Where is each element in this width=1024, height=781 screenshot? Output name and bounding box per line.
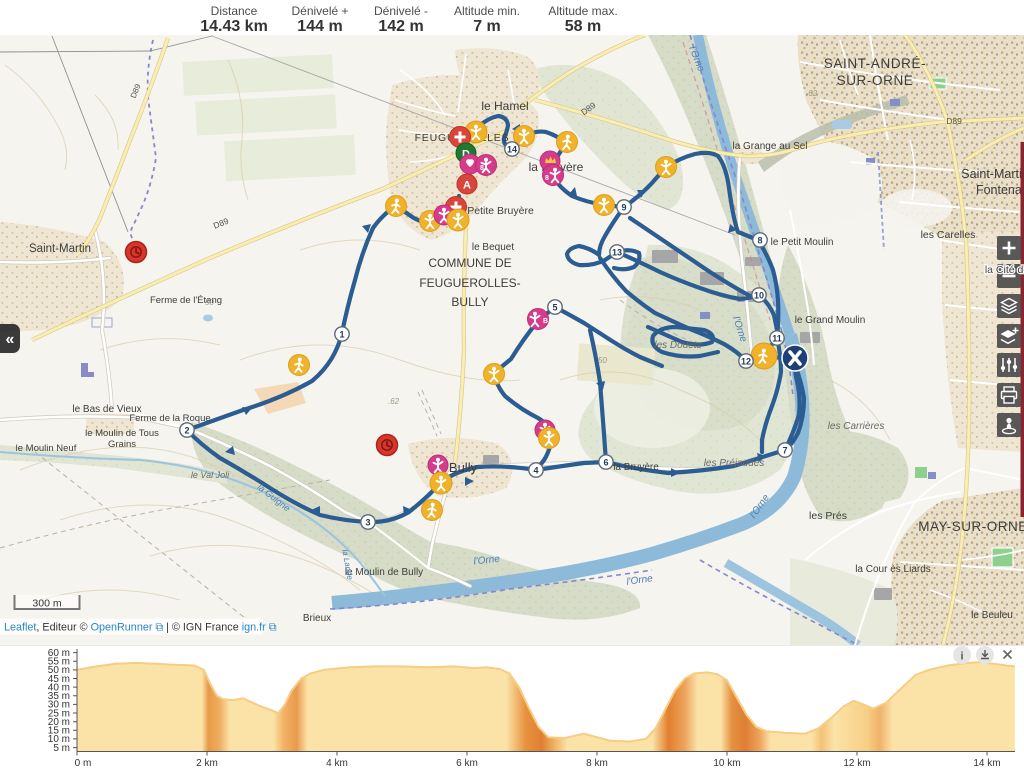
svg-text:6: 6 (603, 458, 608, 468)
svg-text:la Grange au Sel: la Grange au Sel (732, 141, 807, 152)
svg-text:la Cour ès Liards: la Cour ès Liards (855, 564, 931, 575)
svg-text:i: i (960, 651, 963, 663)
svg-text:12: 12 (741, 357, 751, 367)
svg-text:4 km: 4 km (326, 758, 348, 769)
svg-text:13: 13 (612, 248, 622, 258)
svg-text:B: B (543, 318, 548, 325)
svg-text:A: A (463, 180, 471, 192)
svg-text:le Grand Moulin: le Grand Moulin (795, 315, 866, 326)
svg-text:le Moulin Neuf: le Moulin Neuf (16, 443, 77, 454)
svg-text:COMMUNE DE: COMMUNE DE (428, 256, 511, 270)
svg-text:11: 11 (772, 334, 782, 344)
svg-text:les Prés: les Prés (809, 510, 847, 522)
svg-text:Leaflet, Editeur © OpenRunner: Leaflet, Editeur © OpenRunner ⧉ | © IGN … (4, 622, 277, 634)
svg-text:FEUGUEROLLES-: FEUGUEROLLES- (419, 276, 520, 290)
svg-text:MAY-SUR-ORNE: MAY-SUR-ORNE (918, 519, 1024, 534)
svg-text:0 m: 0 m (75, 758, 92, 769)
svg-text:.62: .62 (388, 397, 400, 406)
svg-text:14 km: 14 km (973, 758, 1000, 769)
svg-text:9: 9 (621, 203, 626, 213)
svg-text:le Bequet: le Bequet (472, 242, 514, 253)
svg-text:8: 8 (757, 236, 762, 246)
svg-text:D89: D89 (946, 116, 962, 126)
svg-text:SUR-ORNE: SUR-ORNE (837, 73, 914, 88)
svg-text:8: 8 (545, 175, 549, 182)
svg-text:Grains: Grains (108, 439, 136, 450)
svg-text:BULLY: BULLY (451, 295, 488, 309)
svg-text:5 m: 5 m (53, 743, 70, 754)
svg-text:2: 2 (184, 426, 189, 436)
svg-text:Bully: Bully (449, 460, 478, 475)
svg-text:50: 50 (598, 356, 607, 365)
svg-text:2 km: 2 km (196, 758, 218, 769)
svg-text:le Moulin de Bully: le Moulin de Bully (345, 567, 423, 578)
svg-text:50: 50 (205, 298, 214, 307)
svg-text:10: 10 (754, 291, 764, 301)
svg-text:le Beuleu: le Beuleu (971, 610, 1013, 621)
svg-text:8 km: 8 km (586, 758, 608, 769)
svg-text:1: 1 (339, 330, 344, 340)
svg-text:le Petit Moulin: le Petit Moulin (771, 237, 834, 248)
svg-text:le Hamel: le Hamel (481, 99, 528, 113)
svg-text:Brieux: Brieux (303, 613, 331, 624)
svg-text:les Carrières: les Carrières (828, 421, 885, 432)
svg-text:3: 3 (365, 518, 370, 528)
svg-text:«: « (6, 331, 15, 348)
svg-text:le Moulin de Tous: le Moulin de Tous (85, 428, 159, 439)
svg-text:14: 14 (507, 145, 517, 155)
svg-text:les Préjaudes: les Préjaudes (704, 458, 765, 469)
svg-text:Ferme de la Roque: Ferme de la Roque (129, 413, 210, 424)
svg-text:12 km: 12 km (843, 758, 870, 769)
svg-text:le Val Joli: le Val Joli (191, 470, 230, 480)
svg-text:Saint-Martin: Saint-Martin (961, 167, 1024, 181)
svg-text:10 km: 10 km (713, 758, 740, 769)
svg-text:les Douets: les Douets (654, 340, 701, 351)
svg-text:la Cité de: la Cité de (985, 264, 1024, 276)
svg-text:7: 7 (782, 446, 787, 456)
svg-text:SAINT-ANDRÉ-: SAINT-ANDRÉ- (824, 56, 926, 71)
svg-text:8: 8 (480, 165, 484, 172)
svg-text:300 m: 300 m (32, 598, 61, 610)
svg-text:la Bruyère: la Bruyère (613, 462, 659, 473)
svg-text:.62: .62 (806, 89, 818, 98)
svg-text:6 km: 6 km (456, 758, 478, 769)
svg-text:Saint-Martin: Saint-Martin (29, 243, 91, 255)
svg-text:Fontenay: Fontenay (976, 183, 1024, 197)
svg-text:4: 4 (533, 466, 538, 476)
svg-text:les Carelles: les Carelles (921, 229, 976, 241)
svg-text:5: 5 (552, 303, 557, 313)
